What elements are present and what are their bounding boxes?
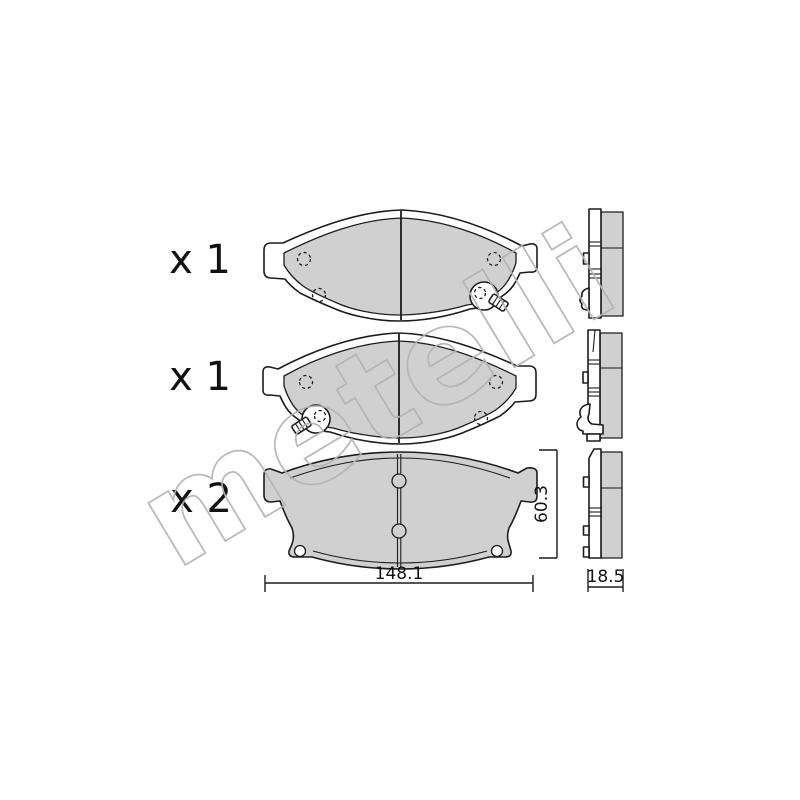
dimension-height-label: 60.3 (532, 485, 552, 523)
side-view-3 (584, 449, 623, 558)
rivet (392, 524, 406, 538)
retainer-tab (584, 526, 590, 535)
dimension-depth: 18.5 (587, 567, 625, 592)
dimension-height: 60.3 (532, 450, 557, 558)
brake-pad-technical-drawing: 148.1 60.3 18.5 x 1 x 1 x 2 metelli (0, 0, 800, 800)
retainer-tab (583, 372, 588, 383)
dimension-width: 148.1 (265, 564, 533, 592)
friction-block (601, 452, 622, 558)
quantity-label-1: x 1 (169, 237, 231, 283)
wear-indicator-foot (587, 434, 600, 441)
dimension-width-label: 148.1 (375, 564, 424, 584)
dimension-depth-label: 18.5 (587, 567, 625, 587)
mounting-hole (492, 546, 503, 557)
quantity-label-2: x 1 (169, 354, 231, 400)
backplate-edge (589, 449, 601, 558)
retainer-tab (584, 547, 590, 557)
mounting-hole (295, 546, 306, 557)
drawing-canvas: 148.1 60.3 18.5 x 1 x 1 x 2 metelli (0, 0, 800, 800)
retainer-tab (584, 477, 590, 487)
